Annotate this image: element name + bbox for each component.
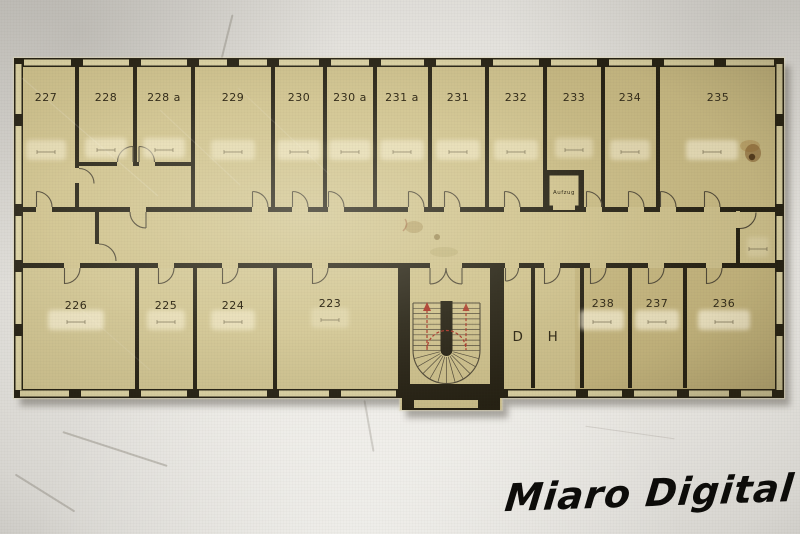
room-label-233: 233 <box>563 91 586 104</box>
room-label-225: 225 <box>155 299 178 312</box>
room-label-230a: 230 a <box>333 91 367 104</box>
room-label-229: 229 <box>222 91 245 104</box>
room-label-227: 227 <box>35 91 58 104</box>
room-label-230: 230 <box>288 91 311 104</box>
room-label-228: 228 <box>95 91 118 104</box>
room-label-224: 224 <box>222 299 245 312</box>
room-label-232: 232 <box>505 91 528 104</box>
room-label-226: 226 <box>65 299 88 312</box>
board-vignette <box>14 58 784 410</box>
room-label-228a: 228 a <box>147 91 181 104</box>
room-label-wc-d: D <box>513 329 524 345</box>
room-label-223: 223 <box>319 297 342 310</box>
elevator-label: Aufzug <box>553 190 575 196</box>
room-label-231a: 231 a <box>385 91 419 104</box>
room-label-237: 237 <box>646 297 669 310</box>
room-label-231: 231 <box>447 91 470 104</box>
room-label-236: 236 <box>713 297 736 310</box>
photo-of-floor-plan: 227 228 228 a 229 230 230 a 231 a 231 23… <box>0 0 800 534</box>
room-label-234: 234 <box>619 91 642 104</box>
room-label-238: 238 <box>592 297 615 310</box>
room-label-wc-h: H <box>548 329 559 345</box>
room-label-235: 235 <box>707 91 730 104</box>
floor-plan-svg: 227 228 228 a 229 230 230 a 231 a 231 23… <box>0 0 800 534</box>
